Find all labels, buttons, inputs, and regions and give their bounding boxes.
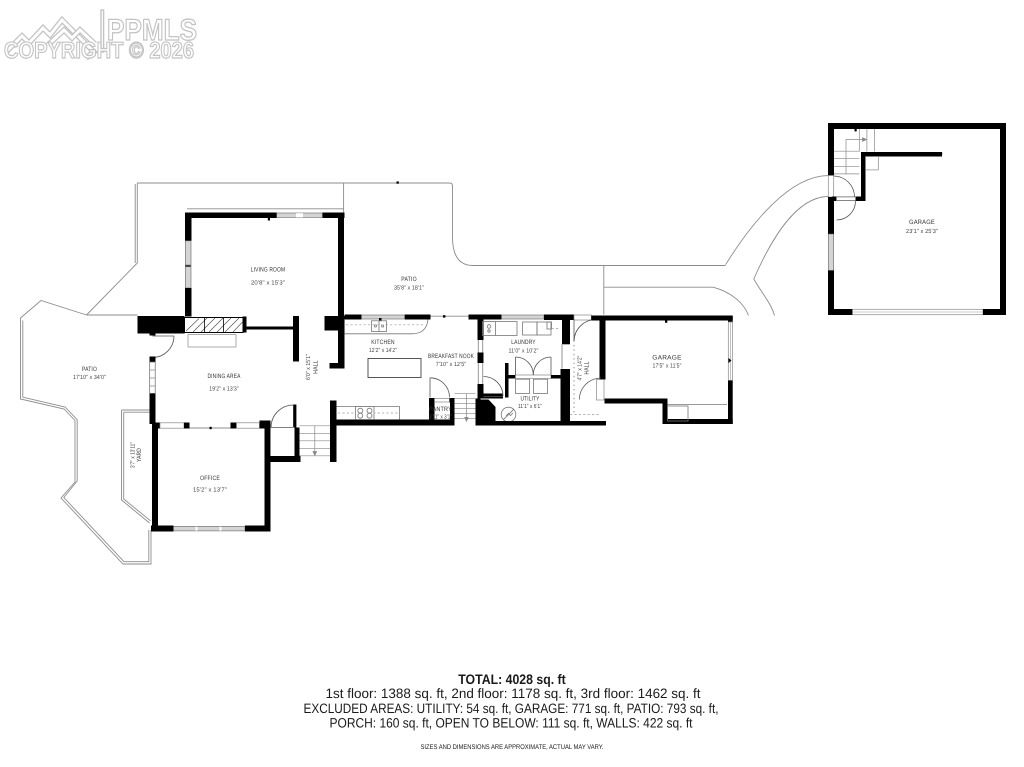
svg-text:12'2" x 14'2": 12'2" x 14'2" [369,347,397,354]
svg-text:11'1" x 6'1": 11'1" x 6'1" [518,403,542,410]
svg-text:3'7" x 13'11": 3'7" x 13'11" [130,442,137,468]
svg-text:LAUNDRY: LAUNDRY [511,339,536,346]
svg-text:OFFICE: OFFICE [200,475,220,482]
svg-text:DINING AREA: DINING AREA [208,373,241,380]
svg-text:35'8" x 18'1": 35'8" x 18'1" [394,285,424,292]
svg-text:17'10" x 34'0": 17'10" x 34'0" [73,374,106,381]
svg-text:LIVING ROOM: LIVING ROOM [251,267,286,274]
svg-text:17'5" x 11'5": 17'5" x 11'5" [653,363,682,370]
svg-text:GARAGE: GARAGE [909,219,935,226]
svg-text:SIZES AND DIMENSIONS ARE APPRO: SIZES AND DIMENSIONS ARE APPROXIMATE, AC… [421,744,604,751]
svg-text:PORCH: 160 sq. ft, OPEN TO BEL: PORCH: 160 sq. ft, OPEN TO BELOW: 111 sq… [330,715,693,730]
svg-text:BREAKFAST NOOK: BREAKFAST NOOK [428,353,474,360]
svg-text:KITCHEN: KITCHEN [371,339,395,346]
svg-text:GARAGE: GARAGE [652,355,682,362]
svg-text:YARD: YARD [136,448,143,462]
svg-text:11'0" x 10'2": 11'0" x 10'2" [509,348,539,355]
svg-text:HALL: HALL [584,361,591,374]
svg-text:TOTAL: 4028 sq. ft: TOTAL: 4028 sq. ft [458,672,566,687]
svg-text:PANTRY: PANTRY [429,406,453,413]
svg-text:COPYRIGHT © 2026: COPYRIGHT © 2026 [4,37,194,63]
svg-text:7'10" x 12'5": 7'10" x 12'5" [436,361,467,368]
svg-text:23'1" x 25'3": 23'1" x 25'3" [906,228,938,235]
svg-text:4'7" x 14'2": 4'7" x 14'2" [577,356,584,381]
svg-text:PATIO: PATIO [401,276,417,283]
svg-text:HALL: HALL [313,360,320,374]
svg-text:PATIO: PATIO [82,366,97,373]
svg-text:UTILITY: UTILITY [521,396,540,403]
svg-text:3'11" x 3'1": 3'11" x 3'1" [429,414,452,421]
svg-text:15'2" x 13'7": 15'2" x 13'7" [193,487,227,494]
svg-text:19'2" x 13'3": 19'2" x 13'3" [209,386,239,393]
svg-text:20'8" x 15'3": 20'8" x 15'3" [251,280,285,287]
svg-text:6'0" x 15'1": 6'0" x 15'1" [305,354,312,380]
svg-text:EXCLUDED AREAS: UTILITY: 54 sq: EXCLUDED AREAS: UTILITY: 54 sq. ft, GARA… [304,701,719,716]
svg-text:1st floor: 1388 sq. ft, 2nd fl: 1st floor: 1388 sq. ft, 2nd floor: 1178 … [326,686,701,701]
